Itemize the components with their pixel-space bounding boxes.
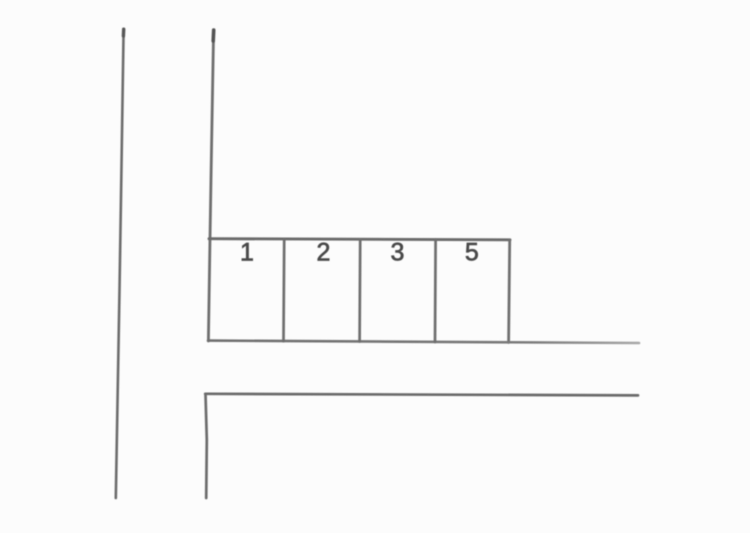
svg-text:5: 5: [465, 239, 479, 267]
svg-text:3: 3: [391, 239, 405, 267]
svg-text:1: 1: [240, 239, 254, 267]
svg-text:2: 2: [317, 239, 331, 267]
